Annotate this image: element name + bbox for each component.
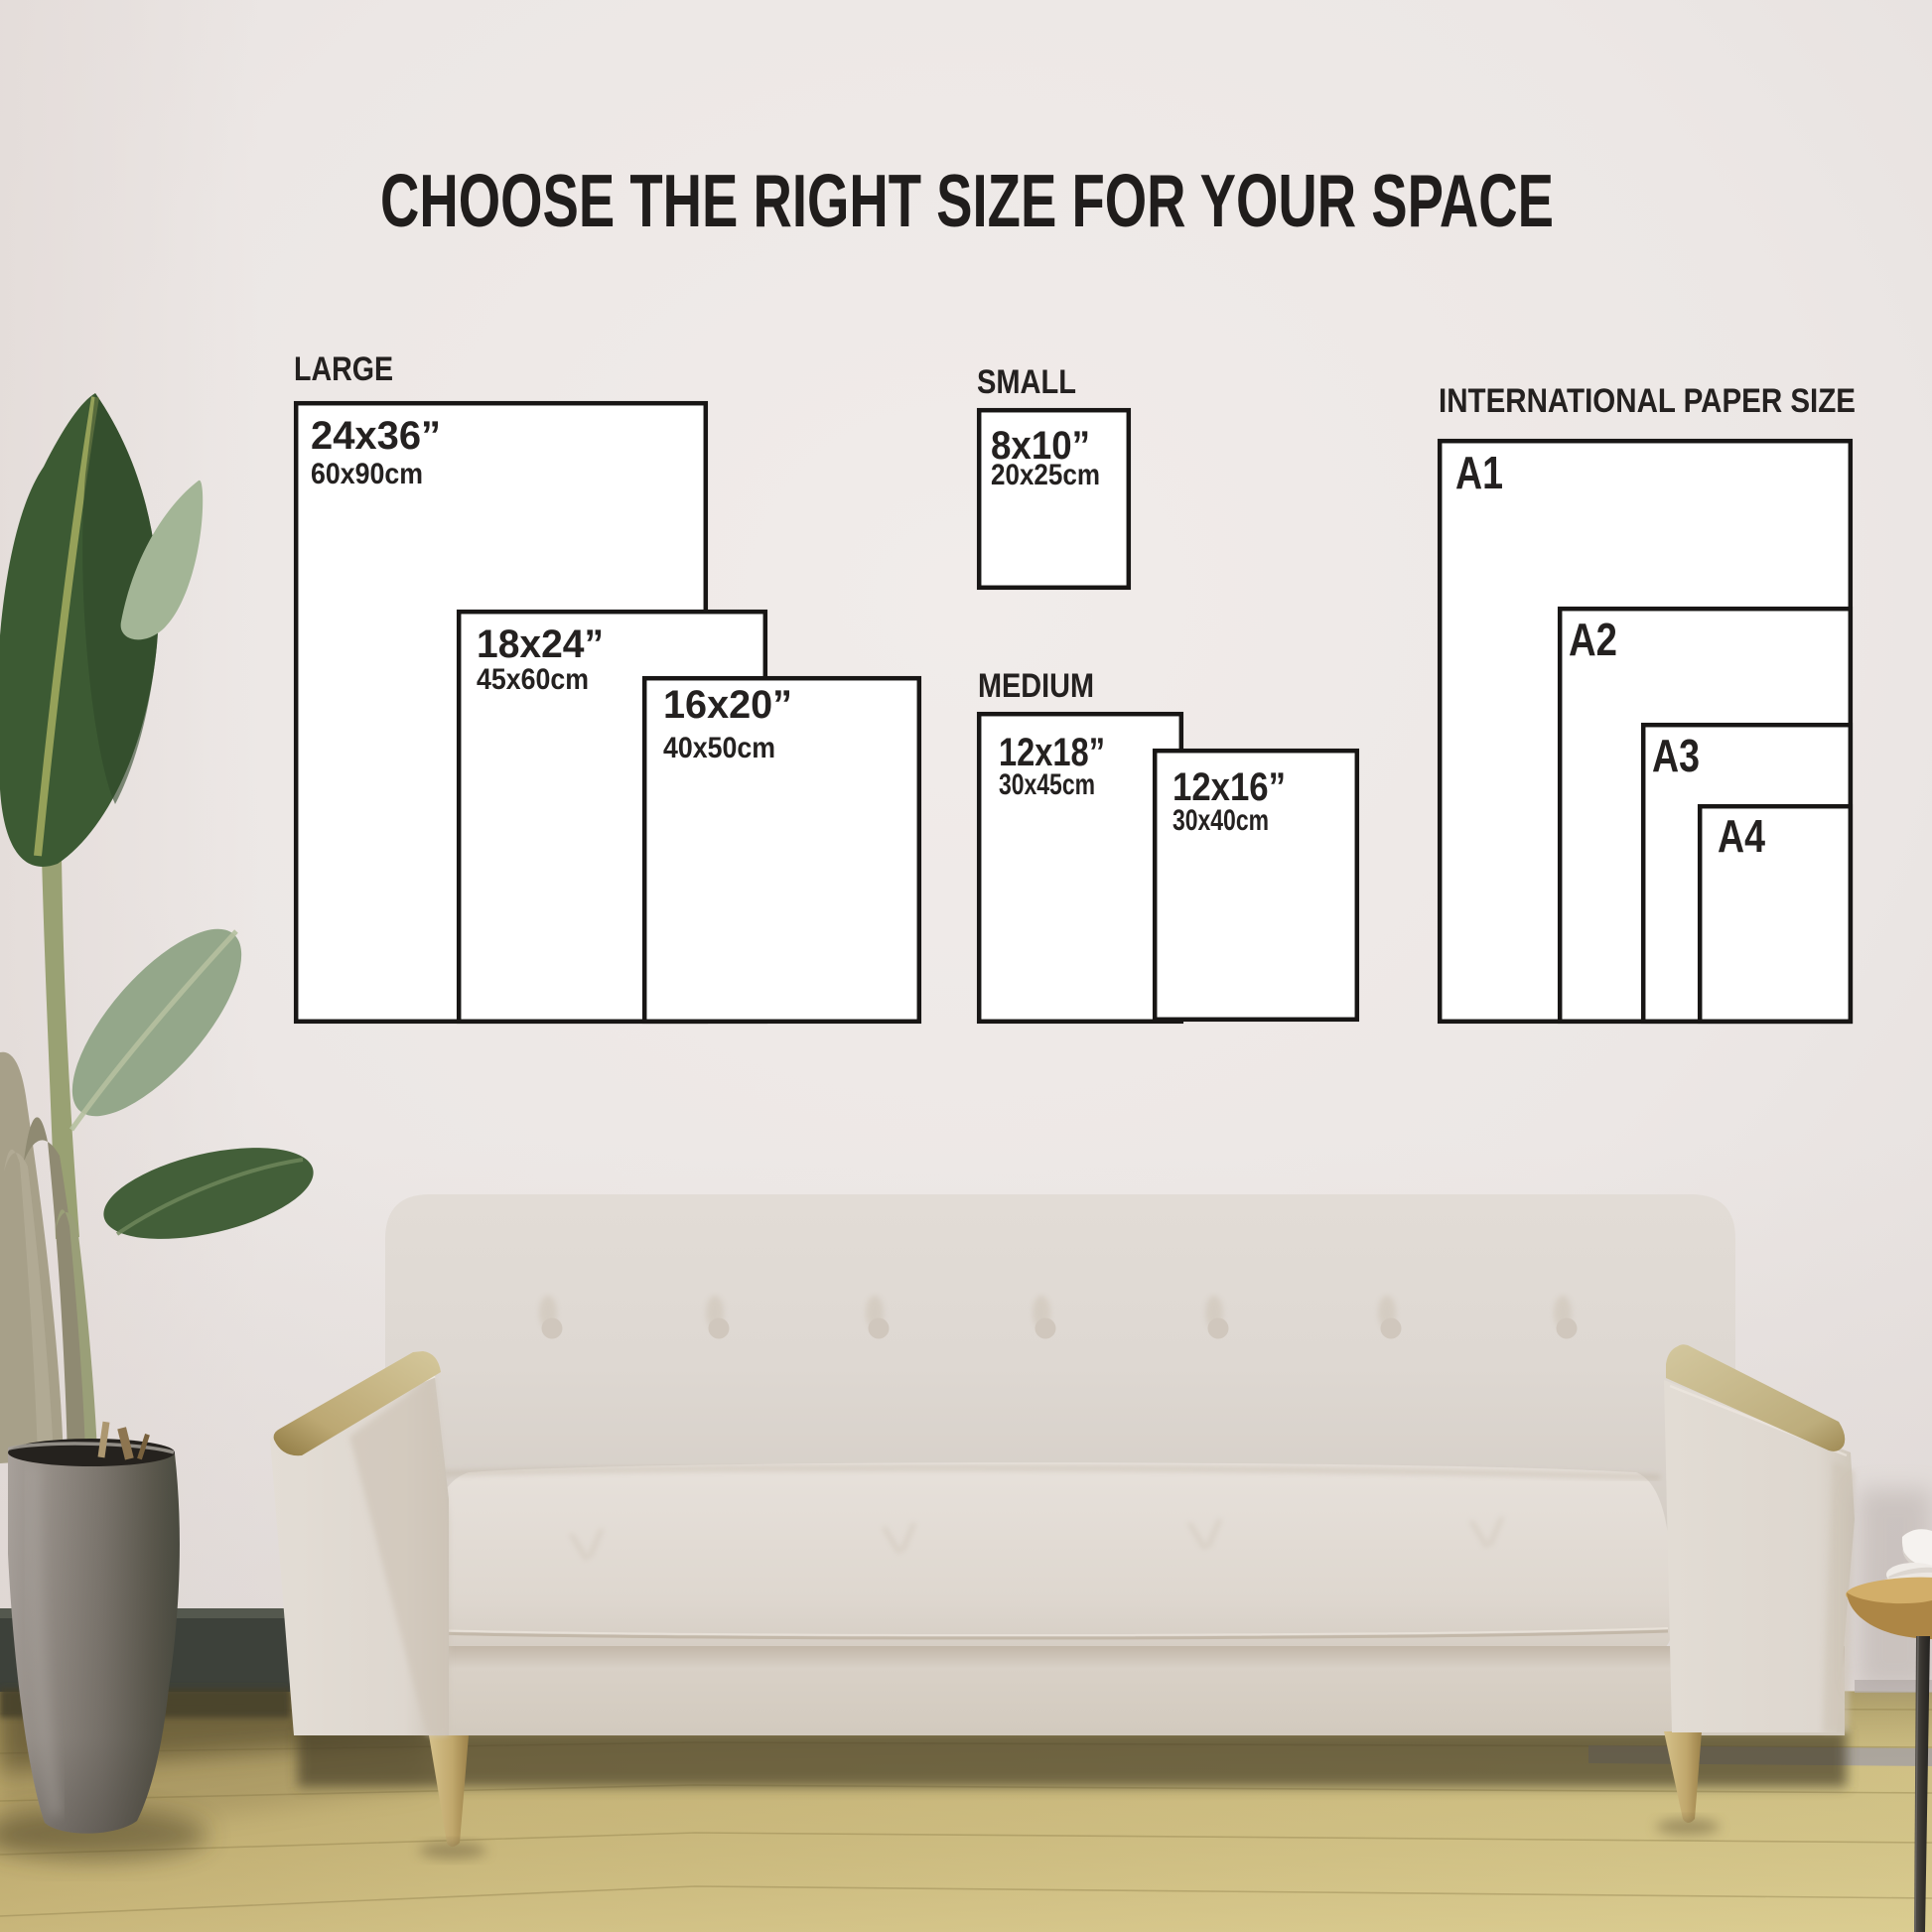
svg-text:24x36”: 24x36” xyxy=(311,414,441,458)
svg-text:A2: A2 xyxy=(1569,614,1617,665)
svg-text:CHOOSE THE RIGHT SIZE FOR YOUR: CHOOSE THE RIGHT SIZE FOR YOUR SPACE xyxy=(380,159,1554,242)
svg-text:30x45cm: 30x45cm xyxy=(999,768,1095,801)
svg-text:LARGE: LARGE xyxy=(294,350,393,388)
svg-text:A1: A1 xyxy=(1455,447,1503,498)
svg-text:30x40cm: 30x40cm xyxy=(1173,804,1269,837)
svg-text:12x16”: 12x16” xyxy=(1173,765,1286,809)
svg-text:16x20”: 16x20” xyxy=(663,683,792,727)
svg-text:18x24”: 18x24” xyxy=(477,622,604,666)
svg-text:60x90cm: 60x90cm xyxy=(311,458,423,490)
svg-text:20x25cm: 20x25cm xyxy=(991,459,1100,491)
svg-text:INTERNATIONAL PAPER SIZE: INTERNATIONAL PAPER SIZE xyxy=(1439,382,1856,420)
svg-text:MEDIUM: MEDIUM xyxy=(978,667,1094,705)
svg-text:SMALL: SMALL xyxy=(977,363,1076,401)
svg-text:40x50cm: 40x50cm xyxy=(663,732,775,764)
svg-text:45x60cm: 45x60cm xyxy=(477,663,589,696)
svg-text:A4: A4 xyxy=(1718,810,1765,862)
svg-text:A3: A3 xyxy=(1652,730,1700,781)
